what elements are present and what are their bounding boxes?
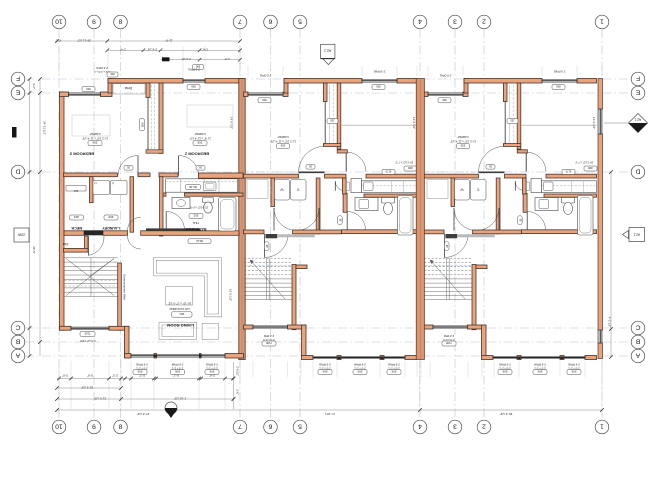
- svg-text:A: A: [635, 352, 640, 359]
- svg-text:806: 806: [195, 65, 200, 68]
- svg-text:D: D: [15, 168, 20, 175]
- svg-text:4: 4: [418, 18, 422, 25]
- svg-text:2’-8 1/2" PPM: 2’-8 1/2" PPM: [80, 339, 95, 342]
- svg-text:806: 806: [191, 85, 196, 89]
- svg-text:BS-1B: BS-1B: [189, 185, 197, 189]
- svg-text:10: 10: [55, 423, 63, 430]
- svg-text:10’-0 1/2" x 5’-0": 10’-0 1/2" x 5’-0": [189, 206, 208, 210]
- svg-text:2’-5 + 2’-1: 2’-5 + 2’-1: [534, 367, 546, 370]
- svg-text:2’-8 PPM: 2’-8 PPM: [264, 334, 274, 337]
- svg-text:2’-5 + 2’-1: 2’-5 + 2’-1: [354, 367, 366, 370]
- svg-text:2’-6 PPM4: 2’-6 PPM4: [534, 363, 546, 366]
- svg-text:2’-3 + 2’-3: 2’-3 + 2’-3: [443, 338, 455, 341]
- svg-text:806: 806: [262, 98, 267, 102]
- svg-text:BEDROOM 3: BEDROOM 3: [69, 152, 94, 157]
- svg-text:CARPET: CARPET: [194, 132, 206, 136]
- svg-text:301: 301: [179, 312, 184, 316]
- svg-text:Stor: Stor: [62, 242, 69, 246]
- svg-text:25’-2 1/2": 25’-2 1/2": [81, 385, 93, 389]
- svg-text:4: 4: [418, 423, 422, 430]
- svg-text:MECH.: MECH.: [71, 226, 83, 230]
- svg-text:2: 2: [482, 423, 486, 430]
- svg-text:20’-2 1/2" x 7’-1": 20’-2 1/2" x 7’-1": [395, 161, 413, 164]
- svg-text:306: 306: [92, 141, 97, 145]
- svg-text:7: 7: [238, 18, 242, 25]
- svg-text:1: 1: [600, 423, 604, 430]
- svg-text:2’-6 PPM3: 2’-6 PPM3: [206, 363, 218, 366]
- svg-text:E08: E08: [322, 370, 327, 374]
- svg-text:TILE: TILE: [193, 221, 199, 225]
- svg-text:F: F: [16, 75, 20, 82]
- svg-text:2’-8 PPM: 2’-8 PPM: [444, 334, 454, 337]
- svg-text:3: 3: [453, 423, 457, 430]
- svg-text:A: A: [15, 352, 20, 359]
- svg-text:(1’-10"): (1’-10"): [325, 412, 335, 416]
- svg-text:806: 806: [442, 98, 447, 102]
- svg-text:LIVING ROOM: LIVING ROOM: [166, 323, 194, 328]
- svg-text:20’-2 1/2" x 7’-1": 20’-2 1/2" x 7’-1": [575, 161, 593, 164]
- svg-text:2’-5 + 2’-1: 2’-5 + 2’-1: [206, 367, 218, 370]
- svg-text:16’-10" x 17’-0 1/2": 16’-10" x 17’-0 1/2": [168, 302, 192, 306]
- svg-text:2’-3 + 2’-3: 2’-3 + 2’-3: [263, 338, 275, 341]
- svg-text:2’-8 PPM3: 2’-8 PPM3: [136, 363, 148, 366]
- svg-text:C: C: [635, 324, 640, 331]
- svg-text:24’-11 1/2": 24’-11 1/2": [43, 121, 47, 135]
- svg-text:305: 305: [460, 144, 465, 148]
- svg-text:E08: E08: [391, 370, 396, 374]
- svg-text:2’-8 1/2": 2’-8 1/2": [236, 366, 240, 376]
- svg-text:E08: E08: [209, 370, 214, 374]
- svg-text:10: 10: [55, 18, 63, 25]
- svg-text:CARPET: CARPET: [277, 135, 289, 139]
- svg-text:2’-2": 2’-2": [112, 374, 118, 378]
- svg-text:2’-5 + 2’-1: 2’-5 + 2’-1: [388, 367, 400, 370]
- svg-text:22W: 22W: [17, 233, 25, 237]
- svg-text:E08: E08: [357, 370, 362, 374]
- svg-text:LAUNDRY: LAUNDRY: [102, 226, 120, 230]
- svg-text:2’-8": 2’-8": [224, 57, 229, 61]
- svg-text:2’-3 PPM1: 2’-3 PPM1: [373, 70, 385, 73]
- svg-text:4’-2 1/2": 4’-2 1/2": [608, 317, 612, 328]
- svg-text:6170: 6170: [385, 170, 391, 173]
- svg-text:2’-6 PPM3: 2’-6 PPM3: [568, 363, 580, 366]
- svg-text:2’-0 1/2": 2’-0 1/2": [181, 57, 191, 61]
- svg-text:21’-0 1/2": 21’-0 1/2": [94, 396, 106, 400]
- svg-text:305: 305: [197, 141, 202, 145]
- svg-text:114: 114: [73, 189, 78, 193]
- svg-text:2’-3 PPM1: 2’-3 PPM1: [553, 70, 565, 73]
- svg-text:2’-6 PPM3: 2’-6 PPM3: [388, 363, 400, 366]
- svg-text:2’-6 PPM4: 2’-6 PPM4: [354, 363, 366, 366]
- svg-text:6170: 6170: [565, 170, 571, 173]
- svg-text:9: 9: [92, 423, 96, 430]
- svg-text:2’-4": 2’-4": [120, 48, 126, 52]
- svg-text:28’-11 1/2": 28’-11 1/2": [77, 38, 91, 42]
- svg-text:2’-6 1/2": 2’-6 1/2": [147, 48, 157, 52]
- svg-text:E08: E08: [571, 370, 576, 374]
- svg-text:C: C: [15, 324, 20, 331]
- svg-text:5: 5: [298, 423, 302, 430]
- svg-text:2’-5 + 2’-1: 2’-5 + 2’-1: [136, 367, 148, 370]
- svg-text:14’-6 1/2": 14’-6 1/2": [412, 117, 416, 129]
- svg-text:2’-8 PPM3: 2’-8 PPM3: [319, 363, 331, 366]
- svg-text:2’-8 OPN1: 2’-8 OPN1: [96, 66, 108, 69]
- svg-text:1’-10 1/2": 1’-10 1/2": [174, 396, 186, 400]
- svg-text:27’-8 1/2": 27’-8 1/2": [137, 412, 150, 416]
- svg-text:A2.1: A2.1: [633, 233, 640, 237]
- svg-text:11’-2 1/2" x 11’-4 1/2": 11’-2 1/2" x 11’-4 1/2": [82, 136, 108, 140]
- svg-text:4’-2": 4’-2": [32, 83, 36, 89]
- svg-text:2: 2: [482, 18, 486, 25]
- svg-text:11’-6" x 11’-4 1/2": 11’-6" x 11’-4 1/2": [189, 136, 211, 140]
- svg-text:CARPET: CARPET: [457, 135, 469, 139]
- svg-text:E: E: [635, 89, 640, 96]
- svg-text:2’-5 + 2’-1: 2’-5 + 2’-1: [499, 367, 511, 370]
- svg-text:30B: 30B: [588, 166, 593, 170]
- svg-text:F: F: [636, 75, 640, 82]
- svg-text:8: 8: [118, 18, 122, 25]
- svg-text:B: B: [635, 338, 640, 345]
- svg-text:806: 806: [556, 85, 561, 89]
- svg-text:2’-8 PPM3: 2’-8 PPM3: [499, 363, 511, 366]
- svg-text:E08: E08: [537, 370, 542, 374]
- svg-text:7: 7: [238, 423, 242, 430]
- svg-text:LVP FLOORING: LVP FLOORING: [169, 307, 189, 311]
- svg-text:2’-6 PPM4: 2’-6 PPM4: [171, 363, 183, 366]
- svg-text:14’-6 1/2": 14’-6 1/2": [592, 117, 596, 129]
- svg-text:1: 1: [600, 18, 604, 25]
- svg-text:806: 806: [140, 122, 144, 127]
- svg-text:16’-0 1/2": 16’-0 1/2": [229, 289, 233, 301]
- svg-text:135: 135: [330, 119, 335, 123]
- svg-text:Entertainment Wall: Entertainment Wall: [123, 274, 127, 300]
- svg-text:BATHROOM: BATHROOM: [186, 227, 207, 231]
- svg-text:806: 806: [86, 87, 91, 91]
- svg-text:2’-8 OPN1: 2’-8 OPN1: [259, 74, 271, 77]
- svg-text:302: 302: [193, 214, 198, 218]
- svg-text:2’-8 OPN1: 2’-8 OPN1: [439, 74, 451, 77]
- svg-text:Desk: Desk: [124, 86, 132, 90]
- svg-text:26’-5": 26’-5": [32, 246, 36, 253]
- svg-text:6: 6: [268, 423, 272, 430]
- svg-text:B: B: [15, 338, 20, 345]
- svg-text:8: 8: [118, 423, 122, 430]
- svg-text:11’-8": 11’-8": [165, 38, 172, 42]
- svg-text:E08: E08: [175, 370, 180, 374]
- svg-text:BEDROOM 2: BEDROOM 2: [184, 152, 209, 157]
- svg-text:2’-6": 2’-6": [236, 389, 240, 394]
- svg-text:303: 303: [108, 215, 113, 219]
- svg-text:11’-2 1/2" x 11’-4 1/2": 11’-2 1/2" x 11’-4 1/2": [450, 139, 476, 143]
- svg-text:5’-6": 5’-6": [202, 48, 208, 52]
- svg-text:5’-8": 5’-8": [87, 374, 93, 378]
- svg-text:2’-5 + 2’-1: 2’-5 + 2’-1: [171, 367, 183, 370]
- svg-text:9: 9: [92, 18, 96, 25]
- svg-text:806: 806: [376, 85, 381, 89]
- svg-text:6: 6: [268, 18, 272, 25]
- svg-text:2’-5 + 2’-1: 2’-5 + 2’-1: [568, 367, 580, 370]
- svg-text:30B: 30B: [408, 166, 413, 170]
- svg-text:A2.1: A2.1: [324, 49, 331, 53]
- svg-text:305: 305: [280, 144, 285, 148]
- svg-text:CARPET: CARPET: [89, 132, 101, 136]
- svg-text:BLM: BLM: [196, 239, 203, 243]
- svg-text:E08: E08: [137, 370, 142, 374]
- svg-text:5: 5: [298, 18, 302, 25]
- svg-text:26’-4 1/2": 26’-4 1/2": [500, 412, 513, 416]
- svg-text:3’-0": 3’-0": [62, 374, 68, 378]
- svg-text:E: E: [15, 89, 20, 96]
- svg-text:7108: 7108: [84, 332, 90, 336]
- svg-text:A2.1: A2.1: [634, 118, 641, 122]
- svg-text:D: D: [635, 168, 640, 175]
- svg-text:304: 304: [74, 215, 79, 219]
- svg-text:135: 135: [510, 119, 515, 123]
- svg-text:11’-2 1/2" x 11’-4 1/2": 11’-2 1/2" x 11’-4 1/2": [270, 139, 296, 143]
- svg-text:E08: E08: [502, 370, 507, 374]
- svg-text:806: 806: [110, 72, 115, 75]
- svg-text:2’-3 PPM1: 2’-3 PPM1: [188, 68, 200, 71]
- svg-text:2’-5 + 2’-1: 2’-5 + 2’-1: [319, 367, 331, 370]
- svg-text:-8’-1": -8’-1": [55, 38, 62, 42]
- svg-text:3: 3: [453, 18, 457, 25]
